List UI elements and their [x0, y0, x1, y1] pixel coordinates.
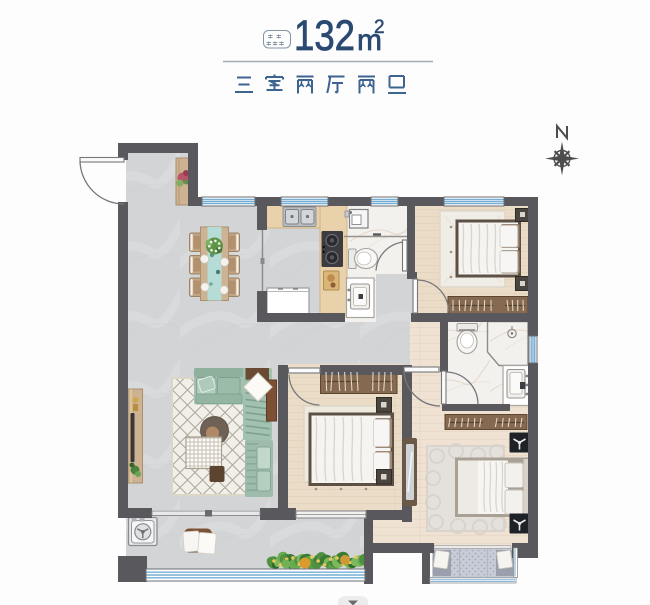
svg-text:2: 2 [374, 17, 385, 38]
svg-text:132: 132 [294, 12, 355, 60]
